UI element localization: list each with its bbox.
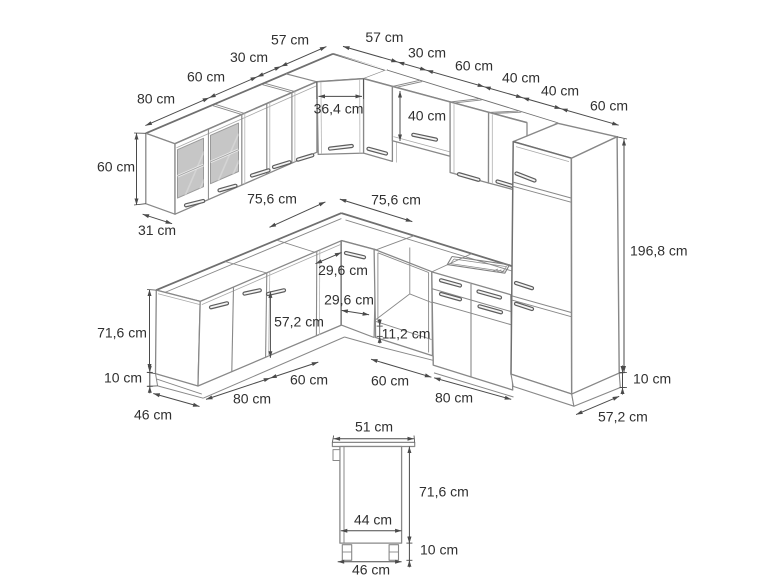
svg-text:60 cm: 60 cm xyxy=(97,159,135,175)
svg-text:57,2 cm: 57,2 cm xyxy=(274,314,324,330)
svg-text:31 cm: 31 cm xyxy=(138,222,176,238)
svg-text:44 cm: 44 cm xyxy=(354,512,392,528)
svg-text:80 cm: 80 cm xyxy=(137,91,175,107)
svg-text:57 cm: 57 cm xyxy=(271,31,309,47)
svg-text:46 cm: 46 cm xyxy=(134,407,172,423)
svg-text:60 cm: 60 cm xyxy=(371,373,409,389)
svg-text:57,2 cm: 57,2 cm xyxy=(598,409,648,425)
svg-text:60 cm: 60 cm xyxy=(590,98,628,114)
svg-text:57 cm: 57 cm xyxy=(365,29,403,45)
svg-text:46 cm: 46 cm xyxy=(352,562,390,578)
svg-text:71,6 cm: 71,6 cm xyxy=(419,484,469,500)
svg-text:30 cm: 30 cm xyxy=(408,45,446,61)
svg-text:29,6 cm: 29,6 cm xyxy=(324,292,374,308)
svg-text:36,4 cm: 36,4 cm xyxy=(314,101,364,117)
svg-text:75,6 cm: 75,6 cm xyxy=(247,191,297,207)
svg-text:29,6 cm: 29,6 cm xyxy=(318,262,368,278)
svg-text:60 cm: 60 cm xyxy=(455,58,493,74)
svg-text:80 cm: 80 cm xyxy=(435,390,473,406)
svg-text:10 cm: 10 cm xyxy=(104,370,142,386)
svg-text:71,6 cm: 71,6 cm xyxy=(97,325,147,341)
svg-text:40 cm: 40 cm xyxy=(502,70,540,86)
svg-text:196,8 cm: 196,8 cm xyxy=(630,243,688,259)
svg-text:10 cm: 10 cm xyxy=(420,542,458,558)
svg-text:75,6 cm: 75,6 cm xyxy=(371,192,421,208)
svg-text:30 cm: 30 cm xyxy=(230,49,268,65)
svg-text:60 cm: 60 cm xyxy=(187,69,225,85)
svg-text:80 cm: 80 cm xyxy=(233,391,271,407)
svg-text:10 cm: 10 cm xyxy=(633,371,671,387)
svg-text:51 cm: 51 cm xyxy=(355,419,393,435)
svg-text:40 cm: 40 cm xyxy=(541,83,579,99)
svg-text:40 cm: 40 cm xyxy=(408,108,446,124)
svg-text:60 cm: 60 cm xyxy=(290,372,328,388)
svg-text:11,2 cm: 11,2 cm xyxy=(382,326,431,342)
